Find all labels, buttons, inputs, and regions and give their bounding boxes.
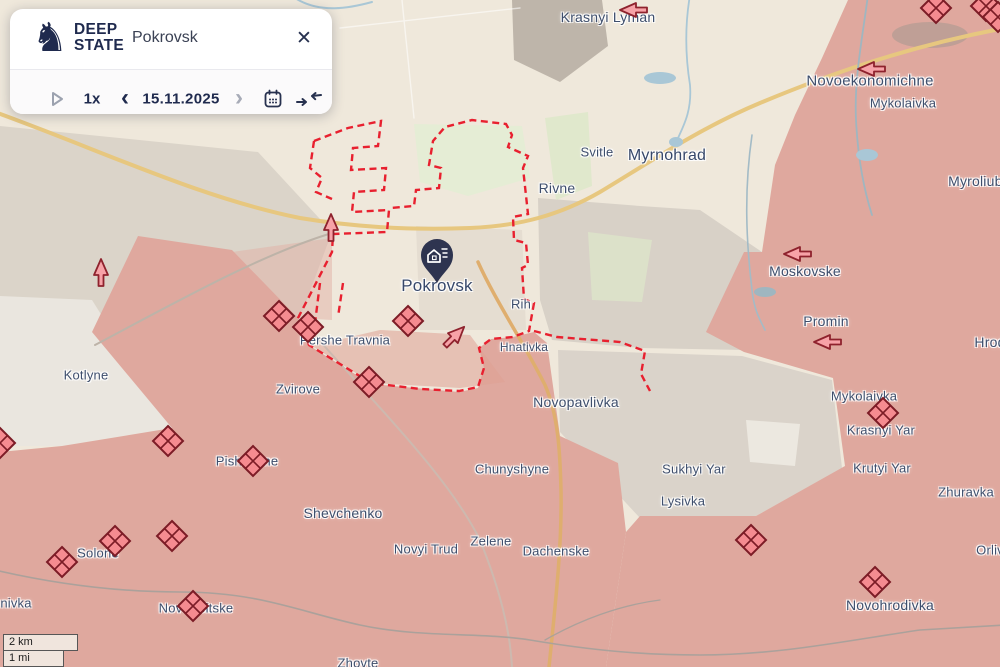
search-input[interactable]: Pokrovsk bbox=[132, 29, 198, 47]
panel-header: ♞ DEEP STATE Pokrovsk ✕ bbox=[10, 9, 332, 69]
date-display[interactable]: 15.11.2025 bbox=[142, 91, 219, 108]
next-day-button[interactable]: › bbox=[235, 88, 243, 108]
control-panel: ♞ DEEP STATE Pokrovsk ✕ 1x ‹ 15.11.2025 … bbox=[10, 9, 332, 114]
brand-line2: STATE bbox=[74, 38, 124, 54]
prev-day-button[interactable]: ‹ bbox=[121, 88, 129, 108]
speed-button[interactable]: 1x bbox=[84, 91, 101, 108]
timeline-controls: 1x ‹ 15.11.2025 › bbox=[10, 70, 332, 114]
deepstate-logo-icon: ♞ bbox=[32, 16, 68, 60]
scale-bar: 2 km 1 mi bbox=[3, 634, 78, 667]
close-icon[interactable]: ✕ bbox=[292, 27, 316, 51]
deepstate-map-app: Krasnyi LymanNovoekonomichneMykolaivkaMy… bbox=[0, 0, 1000, 667]
brand-line1: DEEP bbox=[74, 22, 124, 38]
collapse-arrows-icon[interactable] bbox=[296, 89, 322, 109]
brand-wordmark: DEEP STATE bbox=[74, 22, 124, 54]
scale-mi: 1 mi bbox=[3, 651, 64, 667]
calendar-icon[interactable] bbox=[263, 89, 283, 109]
play-button[interactable] bbox=[48, 90, 66, 108]
scale-km: 2 km bbox=[3, 634, 78, 651]
